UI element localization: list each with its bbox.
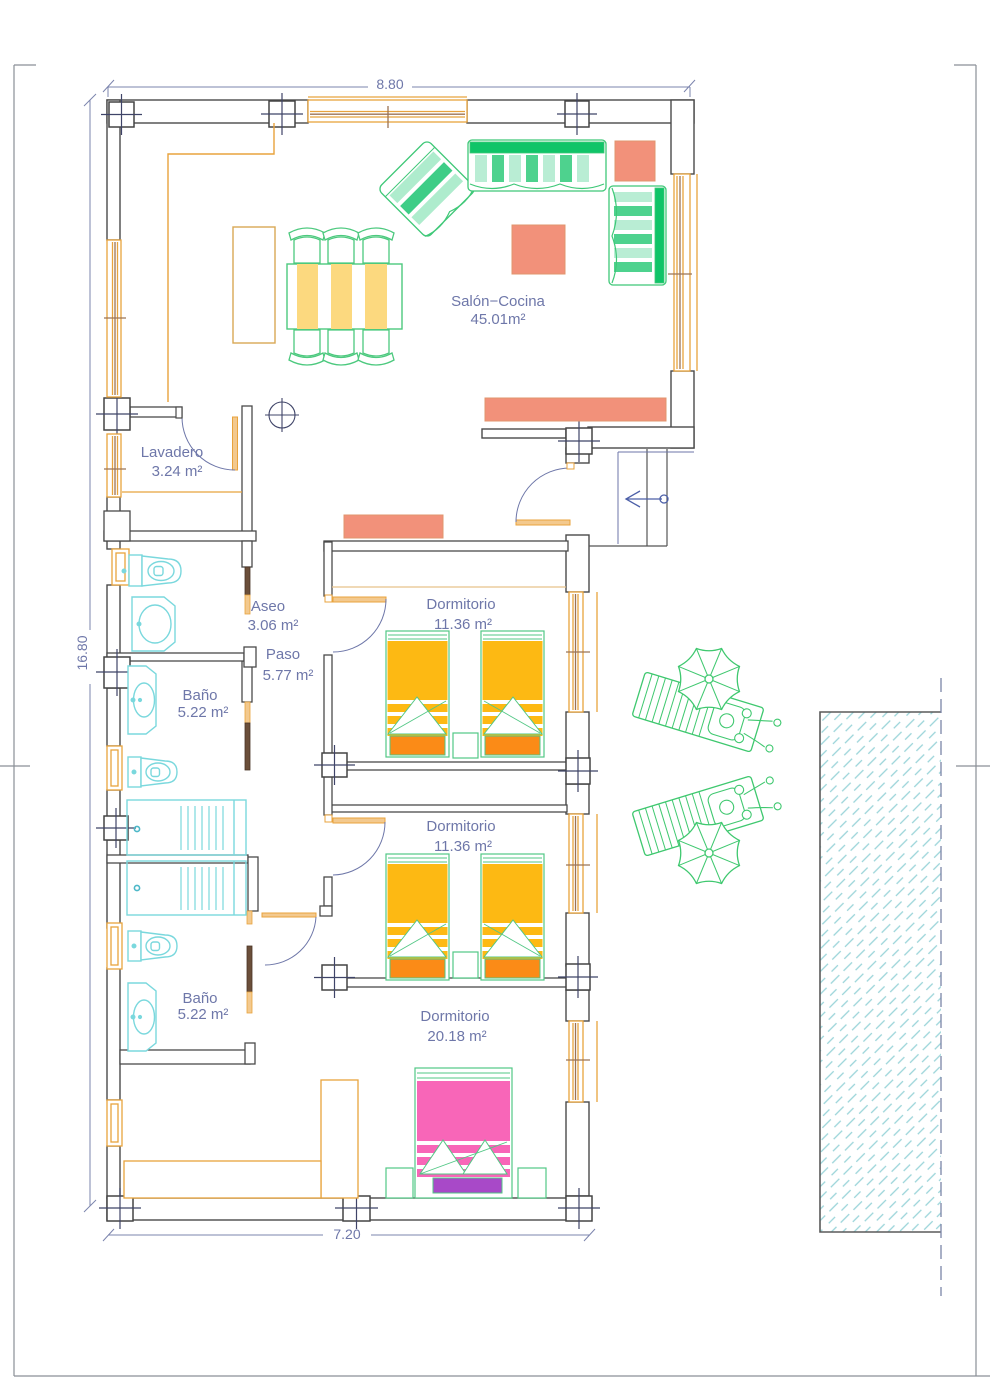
svg-text:11.36 m²: 11.36 m² bbox=[434, 838, 492, 855]
svg-text:Paso: Paso bbox=[266, 646, 300, 663]
svg-text:5.77 m²: 5.77 m² bbox=[263, 667, 314, 684]
svg-text:Dormitorio: Dormitorio bbox=[426, 818, 495, 835]
svg-text:Baño: Baño bbox=[182, 990, 217, 1007]
svg-text:5.22 m²: 5.22 m² bbox=[178, 704, 229, 721]
svg-text:5.22 m²: 5.22 m² bbox=[178, 1006, 229, 1023]
svg-text:20.18 m²: 20.18 m² bbox=[427, 1028, 486, 1045]
svg-text:11.36 m²: 11.36 m² bbox=[434, 616, 492, 633]
svg-text:8.80: 8.80 bbox=[376, 76, 403, 92]
svg-text:16.80: 16.80 bbox=[74, 635, 90, 670]
svg-text:Lavadero: Lavadero bbox=[141, 444, 204, 461]
svg-text:Dormitorio: Dormitorio bbox=[426, 596, 495, 613]
svg-text:3.24 m²: 3.24 m² bbox=[152, 463, 203, 480]
svg-text:3.06 m²: 3.06 m² bbox=[248, 617, 299, 634]
svg-text:Salón−Cocina: Salón−Cocina bbox=[451, 293, 545, 310]
svg-text:Aseo: Aseo bbox=[251, 598, 285, 615]
svg-text:Dormitorio: Dormitorio bbox=[420, 1008, 489, 1025]
svg-text:45.01m²: 45.01m² bbox=[470, 311, 525, 328]
svg-text:Baño: Baño bbox=[182, 687, 217, 704]
